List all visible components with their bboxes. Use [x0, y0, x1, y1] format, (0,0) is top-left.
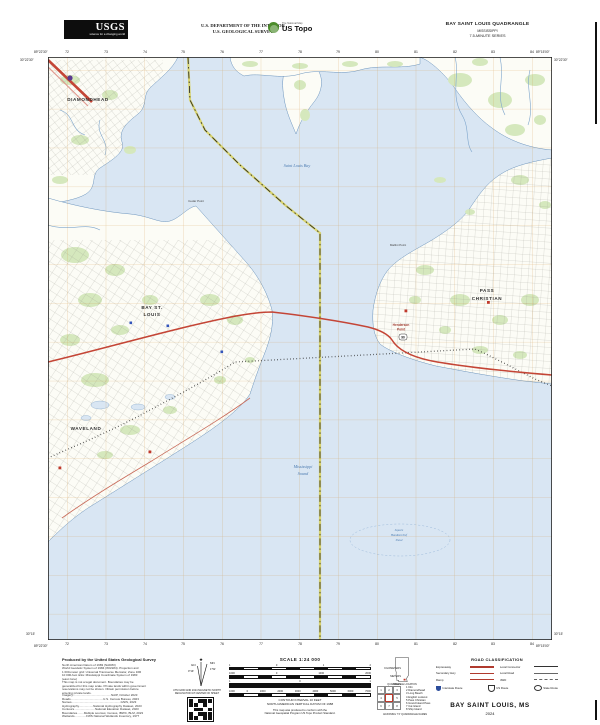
grid-number: 77: [259, 642, 263, 646]
corner-bottom-left-lon: 89°22'30": [34, 644, 48, 648]
produced-by-heading: Produced by the United States Geological…: [62, 657, 178, 662]
legend-local-road: Local Road: [500, 671, 558, 675]
utm-grid-overlay: [48, 57, 552, 640]
corner-bottom-left-lat: 30°15': [26, 632, 35, 636]
grid-number: 72: [65, 642, 69, 646]
conformity-note-line2: National Geospatial Program US Topo Prod…: [225, 712, 375, 715]
state-route-icon: [534, 685, 542, 691]
mississippi-outline: [395, 658, 408, 682]
true-north-star: ★: [199, 657, 204, 662]
grid-number: 78: [298, 50, 302, 54]
label-diamondhead: DIAMONDHEAD: [67, 97, 109, 102]
scale-title: SCALE 1:24 000: [225, 657, 375, 662]
grid-number: 84: [530, 642, 534, 646]
production-credits: Produced by the United States Geological…: [62, 657, 178, 695]
scale-block: SCALE 1:24 000 10 12 KILOMETERS 10000 10…: [225, 657, 375, 716]
topo-map: 90 DIAMONDHEAD BAY ST. LOUIS WAVELAND PA…: [48, 57, 552, 640]
legend-expressway: Expressway: [436, 665, 494, 669]
source-line: Wetlands..............FWS National Wetla…: [62, 715, 178, 719]
sheet-year: 2024: [400, 711, 580, 716]
grid-number: 83: [491, 50, 495, 54]
mn-angle: 1°52´: [210, 667, 216, 671]
quad-location-marker: [404, 679, 406, 681]
label-waveland: WAVELAND: [71, 426, 102, 431]
label-square-handkerchief-shoal: Square: [395, 528, 404, 532]
label-square-handkerchief-shoal: Handkerchief: [390, 533, 408, 537]
legend-ramp: Ramp: [436, 678, 494, 682]
gn-angle: 0°19´: [188, 669, 194, 673]
ustopo-logo: The National Map US Topo: [268, 22, 312, 33]
scale-bar-kilometers: 10 12 KILOMETERS: [225, 664, 375, 671]
ustopo-product: US Topo: [282, 25, 312, 33]
grid-number: 81: [414, 50, 418, 54]
quadrangle-heading: BAY SAINT LOUIS QUADRANGLE MISSISSIPPI 7…: [405, 22, 570, 38]
corner-top-right-lat: 30°22'30": [554, 58, 568, 62]
grid-number: 82: [453, 642, 457, 646]
declination-caption: UTM GRID AND 2024 MAGNETIC NORTH DECLINA…: [162, 689, 232, 695]
legend-state-route: State Route: [534, 685, 558, 691]
quadrangle-title: BAY SAINT LOUIS QUADRANGLE: [405, 22, 570, 27]
magnetic-north-label: MN: [210, 661, 215, 665]
vertical-datum-note: NORTH AMERICAN VERTICAL DATUM OF 1988: [225, 703, 375, 707]
quadrangle-state: MISSISSIPPI: [405, 29, 570, 33]
map-sheet: 90 DIAMONDHEAD BAY ST. LOUIS WAVELAND PA…: [48, 57, 552, 640]
label-henderson-point: Point: [397, 328, 406, 332]
interchange-marker: [67, 75, 72, 80]
road-classification-legend: ROAD CLASSIFICATION Expressway Local Con…: [436, 657, 558, 692]
scale-bar-feet: 10000 10002000 30004000 50006000 7000 FE…: [225, 690, 375, 697]
grid-north-label: GN: [191, 663, 196, 667]
legend-4wd: 4WD: [500, 678, 558, 682]
legend-secondary-hwy: Secondary Hwy: [436, 671, 494, 675]
sheet-title-block: BAY SAINT LOUIS, MS 2024: [400, 702, 580, 716]
declination-caption-line2: DECLINATION AT CENTER OF SHEET: [162, 692, 232, 695]
grid-number: 80: [375, 50, 379, 54]
usgs-logo: USGS science for a changing world: [64, 20, 128, 39]
sheet-edge-mark: [595, 22, 597, 124]
grid-number: 73: [104, 642, 108, 646]
grid-number: 79: [336, 642, 340, 646]
label-bay-st-louis: BAY ST.: [141, 305, 162, 310]
grid-number: 75: [181, 642, 185, 646]
grid-number: 81: [414, 642, 418, 646]
us-route-shield: 90: [399, 334, 407, 340]
corner-top-left-lat: 30°22'30": [20, 58, 34, 62]
utm-grid-numbers-top: 72 73 74 75 76 77 78 79 80 81 82 83 84: [48, 50, 552, 56]
corner-top-left-lon: 89°22'30": [34, 50, 48, 54]
legend-us-route: US Route: [488, 685, 509, 692]
adjoining-quads-grid: 1 2 3 4 5 6 7 8: [377, 686, 401, 710]
label-henderson-point: Henderson: [393, 323, 410, 327]
label-cedar-point: Cedar Point: [188, 199, 204, 203]
scale-bar-meters: 10000 10002000 METERS: [225, 672, 375, 679]
grid-number: 75: [181, 50, 185, 54]
label-pass-christian: CHRISTIAN: [472, 296, 502, 301]
ustopo-globe-icon: [268, 22, 279, 33]
usgs-logo-tagline: science for a changing world: [90, 33, 125, 36]
grid-number: 83: [491, 642, 495, 646]
grid-number: 76: [220, 50, 224, 54]
grid-number: 78: [298, 642, 302, 646]
corner-bottom-right-lat: 30°15': [554, 632, 563, 636]
label-bay-st-louis: LOUIS: [143, 312, 160, 317]
grid-number: 76: [220, 642, 224, 646]
interstate-shield-icon: [436, 686, 441, 691]
us-shield-icon: [488, 685, 495, 692]
us-route-shield-number: 90: [401, 336, 405, 340]
sheet-edge-mark-bottom: [595, 700, 597, 720]
label-mississippi-sound: Mississippi: [293, 464, 314, 469]
grid-number: 73: [104, 50, 108, 54]
label-mississippi-sound: Sound: [298, 471, 309, 476]
scale-bar-miles: 10 1 MILES: [225, 680, 375, 688]
grid-number: 72: [65, 50, 69, 54]
grid-number: 77: [259, 50, 263, 54]
grid-number: 80: [375, 642, 379, 646]
grid-number: 79: [336, 50, 340, 54]
label-pass-christian: PASS: [480, 288, 495, 293]
legend-interstate-route: Interstate Route: [436, 686, 462, 691]
quadrangle-series: 7.5-MINUTE SERIES: [405, 34, 570, 38]
label-saint-louis-bay: Saint Louis Bay: [284, 163, 311, 168]
data-sources-list: Imagery.................................…: [62, 694, 178, 719]
grid-number: 74: [143, 642, 147, 646]
road-classification-title: ROAD CLASSIFICATION: [436, 657, 558, 662]
sheet-title: BAY SAINT LOUIS, MS: [400, 702, 580, 709]
legend-local-connector: Local Connector: [500, 665, 558, 669]
label-square-handkerchief-shoal: Shoal: [396, 538, 403, 542]
grid-number: 84: [530, 50, 534, 54]
current-quad-cell: [385, 694, 393, 702]
qr-code: [187, 697, 214, 722]
label-mallini-point: Mallini Point: [390, 243, 406, 247]
grid-number: 74: [143, 50, 147, 54]
utm-grid-numbers-bottom: 72 73 74 75 76 77 78 79 80 81 82 83 84: [48, 642, 552, 648]
grid-number: 82: [453, 50, 457, 54]
